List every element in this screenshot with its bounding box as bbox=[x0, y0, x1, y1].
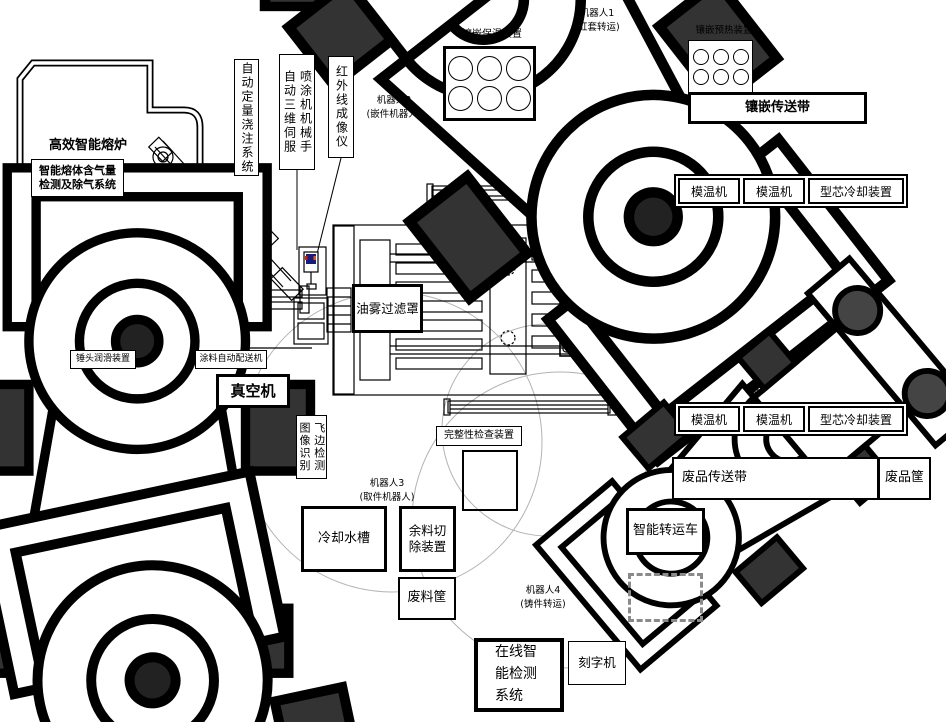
spray-robot-label-left-column: 自动三维伺服 bbox=[282, 70, 297, 154]
insulation-slot bbox=[506, 86, 531, 111]
mold-temp-row-bottom: 模温机 模温机 型芯冷却装置 bbox=[674, 402, 908, 436]
insert-preheat-box bbox=[688, 40, 753, 93]
waste-basket-box: 废料筐 bbox=[398, 577, 456, 620]
robot2-label: 机器人2 (嵌件机器人) bbox=[358, 93, 430, 123]
vision-flash-detection-label: 图像识别 飞边检测 bbox=[296, 415, 327, 479]
robot2-name: 机器人2 bbox=[377, 94, 412, 108]
robot1-label: 机器人1 (缸套转运) bbox=[564, 5, 630, 37]
integrity-check-device-box bbox=[462, 450, 518, 511]
furnace-subsystem-label: 智能熔体含气量检测及除气系统 bbox=[31, 159, 124, 197]
robot1-name: 机器人1 bbox=[580, 7, 615, 21]
cooling-water-tank-box: 冷却水槽 bbox=[301, 506, 387, 572]
core-cooling-device-1: 型芯冷却装置 bbox=[808, 178, 904, 204]
plunger-lubrication-label: 锤头润滑装置 bbox=[70, 350, 136, 369]
mold-temp-machine-2: 模温机 bbox=[743, 178, 805, 204]
scrap-basket-box: 废品筐 bbox=[878, 457, 931, 500]
mold-temp-machine-3: 模温机 bbox=[678, 406, 740, 432]
insert-preheat-label: 镶嵌预热装置 bbox=[692, 24, 756, 37]
robot3-role: (取件机器人) bbox=[360, 491, 415, 505]
robot4-name: 机器人4 bbox=[526, 584, 561, 598]
online-inspection-text: 在线智能检测系统 bbox=[495, 642, 543, 707]
integrity-check-label: 完整性检查装置 bbox=[436, 426, 522, 446]
vacuum-machine-box: 真空机 bbox=[216, 374, 290, 408]
scrap-conveyor-box: 废品传送带 bbox=[672, 457, 879, 500]
preheat-slot bbox=[733, 69, 749, 85]
robot4-label: 机器人4 (铸件转运) bbox=[508, 583, 578, 613]
infrared-imager-label: 红外线成像仪 bbox=[328, 56, 354, 158]
preheat-slot bbox=[713, 69, 729, 85]
robot3-name: 机器人3 bbox=[370, 477, 405, 491]
mold-temp-machine-1: 模温机 bbox=[678, 178, 740, 204]
spray-robot-label: 自动三维伺服 喷涂机机械手 bbox=[279, 54, 315, 170]
vision-label-right-column: 飞边检测 bbox=[312, 422, 326, 472]
oil-mist-filter-box: 油雾过滤罩 bbox=[352, 284, 423, 333]
preheat-slot bbox=[713, 49, 729, 65]
robot3-label: 机器人3 (取件机器人) bbox=[350, 476, 424, 506]
insulation-slot bbox=[448, 86, 473, 111]
mold-temp-machine-4: 模温机 bbox=[743, 406, 805, 432]
pouring-system-label: 自动定量浇注系统 bbox=[234, 59, 259, 176]
insulation-slot bbox=[506, 56, 531, 81]
smart-transfer-cart-box: 智能转运车 bbox=[626, 508, 705, 555]
diagram-canvas: 高效智能熔炉 智能熔体含气量检测及除气系统 自动定量浇注系统 自动三维伺服 喷涂… bbox=[0, 0, 946, 722]
insulation-slot bbox=[477, 56, 502, 81]
robot4-role: (铸件转运) bbox=[520, 598, 565, 612]
robot1-role: (缸套转运) bbox=[574, 21, 619, 35]
online-inspection-box: 在线智能检测系统 bbox=[474, 638, 564, 712]
spray-robot-label-right-column: 喷涂机机械手 bbox=[298, 70, 313, 154]
trim-removal-box: 余料切除装置 bbox=[399, 506, 456, 572]
infrared-imager-device bbox=[299, 247, 326, 295]
preheat-slot bbox=[693, 49, 709, 65]
insulation-slot bbox=[448, 56, 473, 81]
preheat-slot bbox=[693, 69, 709, 85]
paint-dispenser-label: 涂料自动配送机 bbox=[195, 350, 267, 369]
insert-conveyor-box: 镶嵌传送带 bbox=[688, 92, 867, 124]
engraving-machine-box: 刻字机 bbox=[568, 641, 626, 685]
bottom-rail bbox=[444, 399, 616, 415]
insulation-slot bbox=[477, 86, 502, 111]
robot2-role: (嵌件机器人) bbox=[367, 108, 422, 122]
core-cooling-device-2: 型芯冷却装置 bbox=[808, 406, 904, 432]
mold-temp-row-top: 模温机 模温机 型芯冷却装置 bbox=[674, 174, 908, 208]
preheat-slot bbox=[733, 49, 749, 65]
insert-insulation-label: 镶嵌保温装置 bbox=[453, 28, 531, 42]
insert-insulation-box bbox=[443, 46, 536, 121]
vision-label-left-column: 图像识别 bbox=[297, 422, 311, 472]
furnace-title: 高效智能熔炉 bbox=[38, 137, 138, 155]
cart-parking-slot bbox=[628, 573, 703, 622]
